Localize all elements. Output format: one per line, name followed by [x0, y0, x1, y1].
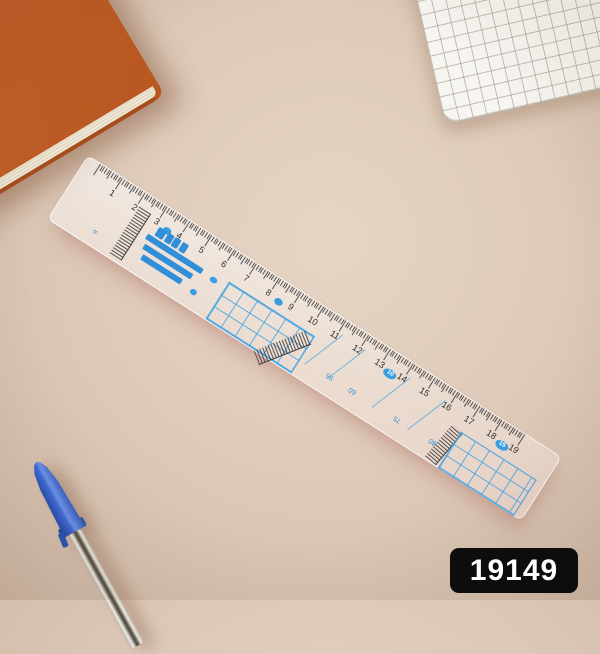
- ruler-conversion-label: 60: [348, 386, 358, 396]
- ruler-cm-number: 6: [219, 259, 229, 270]
- ruler-unit-oval: [273, 297, 284, 308]
- hatch-scale-left-icon: [110, 207, 151, 261]
- product-photo-scene: { "photo": { "background_color": "#dcc8b…: [0, 0, 600, 600]
- ruler-cm-number: 3: [152, 216, 162, 227]
- ruler-cm-number: 5: [197, 244, 207, 255]
- ruler-cm-number: 9: [286, 301, 296, 312]
- blue-squiggle-mark: ≈: [91, 226, 99, 237]
- grid-notepad: [402, 0, 600, 125]
- pen-barrel: [69, 529, 144, 649]
- ruler-cm-number: 1: [108, 187, 118, 198]
- product-code-badge: 19149: [450, 548, 578, 593]
- ruler-top-scale: 1234567891011121314151617181910155560758…: [88, 156, 560, 457]
- ruler-cm-number: 8: [264, 287, 274, 298]
- ruler-conversion-line: [327, 349, 366, 379]
- blue-dot-decoration: [209, 275, 219, 284]
- ruler-conversion-line: [407, 400, 446, 430]
- ruler-conversion-line: [372, 378, 411, 408]
- blue-dot-decoration: [189, 288, 198, 297]
- ruler-cm-number: 7: [241, 273, 251, 284]
- blue-grid-right: [438, 432, 537, 517]
- ballpoint-pen: [24, 455, 150, 652]
- ruler-conversion-label: 75: [392, 414, 402, 424]
- transparent-ruler: 1234567891011121314151617181910155560758…: [47, 155, 562, 521]
